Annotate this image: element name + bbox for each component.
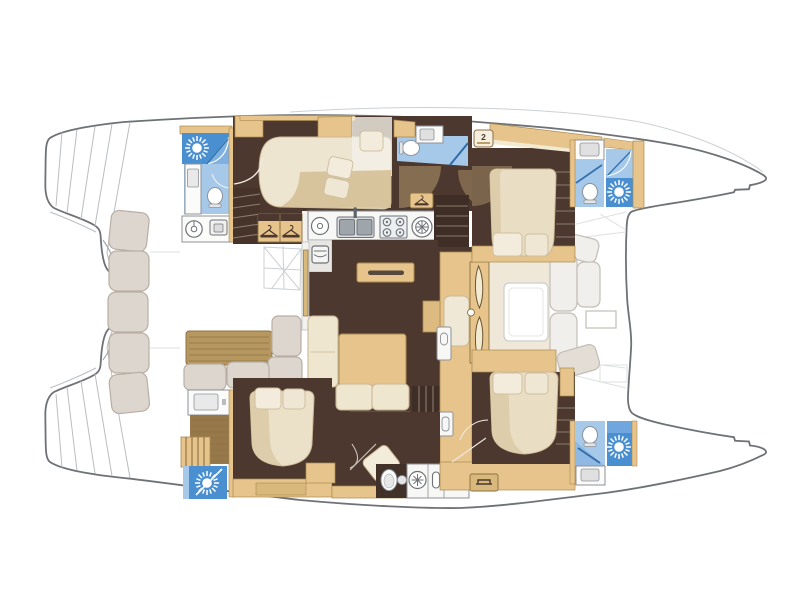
svg-text:2: 2 (481, 132, 486, 142)
